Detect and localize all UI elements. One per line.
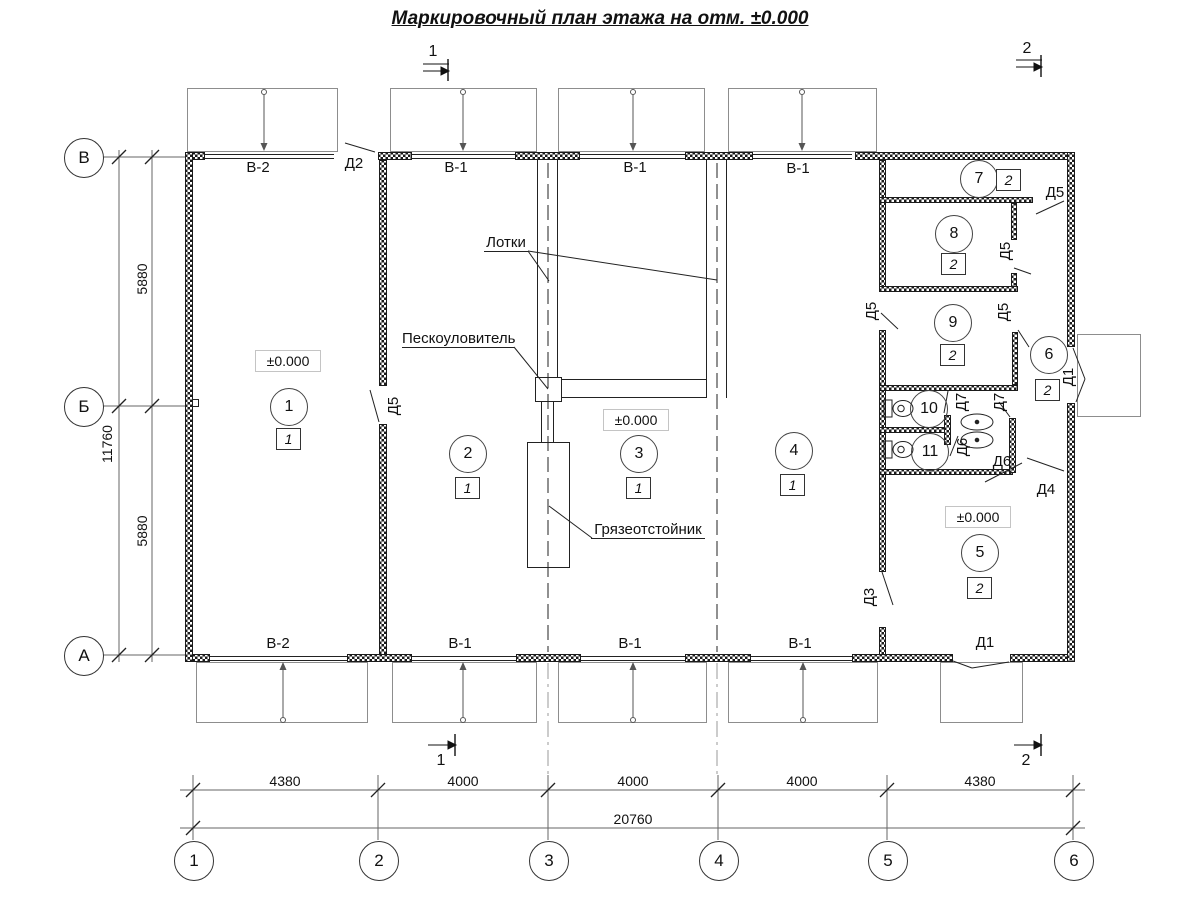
room-bubble-10: 10 [910, 390, 948, 428]
wall-right-upper [1067, 152, 1075, 347]
door-label-d7-2: Д7 [990, 380, 1008, 424]
dim-4000-1: 4000 [433, 773, 493, 789]
apron-top-1 [187, 88, 338, 152]
window-label-bottom-4: В-1 [778, 634, 822, 652]
axis-col-5: 5 [868, 841, 908, 881]
wall-top-right-block [855, 152, 1075, 160]
room-bubble-6: 6 [1030, 336, 1068, 374]
dim-total-left: 11760 [99, 414, 115, 474]
window-label-bottom-3: В-1 [608, 634, 652, 652]
door-label-d6-2: Д6 [980, 452, 1024, 470]
dim-5880-lower: 5880 [134, 501, 150, 561]
room-bubble-11: 11 [911, 433, 949, 471]
wall-bottom-pier-2 [347, 654, 412, 662]
axis-col-3: 3 [529, 841, 569, 881]
channel-cross [558, 379, 706, 398]
wall-bottom-pier-6 [1010, 654, 1075, 662]
axis-lines [102, 150, 1085, 840]
room-mark-3: 1 [626, 477, 651, 499]
door-label-d2: Д2 [332, 154, 376, 172]
room-bubble-5: 5 [961, 534, 999, 572]
door-label-d7-1: Д7 [952, 380, 970, 424]
wall-top-pier-3 [515, 152, 580, 160]
room-mark-1: 1 [276, 428, 301, 450]
partition-block-west-lower [879, 627, 886, 655]
wall-bottom-pier-3 [516, 654, 581, 662]
room-mark-7: 2 [996, 169, 1021, 191]
window-bottom-3 [581, 656, 685, 661]
room-bubble-2: 2 [449, 435, 487, 473]
dim-4380-2: 4380 [950, 773, 1010, 789]
room-mark-4: 1 [780, 474, 805, 496]
elevation-mark-room3: ±0.000 [603, 409, 669, 431]
axis-col-1: 1 [174, 841, 214, 881]
annotation-trays: Лотки [484, 234, 528, 252]
drawing-title: Маркировочный план этажа на отм. ±0.000 [0, 8, 1200, 30]
section-mark-2-top: 2 [1016, 40, 1038, 58]
channel-to-settler [541, 401, 554, 442]
dimension-ticks [112, 150, 1080, 835]
partition-room10-11 [879, 427, 948, 433]
room-mark-5: 2 [967, 577, 992, 599]
apron-bottom-4 [728, 662, 878, 723]
section-mark-1-top: 1 [422, 43, 444, 61]
room-bubble-4: 4 [775, 432, 813, 470]
window-label-top-2: В-1 [434, 158, 478, 176]
channel-left [537, 160, 558, 378]
axis-col-2: 2 [359, 841, 399, 881]
dim-4000-2: 4000 [603, 773, 663, 789]
room-mark-8: 2 [941, 253, 966, 275]
apron-bottom-3 [558, 662, 707, 723]
window-bottom-4 [751, 656, 852, 661]
window-label-top-3: В-1 [613, 158, 657, 176]
axis-row-b: Б [64, 387, 104, 427]
door-label-d4: Д4 [1024, 480, 1068, 498]
toilet-room11 [884, 441, 913, 458]
channel-right [706, 160, 727, 398]
window-label-top-1: В-2 [236, 158, 280, 176]
partition-room8-east-b [1011, 273, 1017, 287]
section-cut-marks [423, 55, 1042, 756]
wall-right-lower [1067, 403, 1075, 662]
elevation-mark-room1: ±0.000 [255, 350, 321, 372]
apron-top-3 [558, 88, 705, 152]
room-bubble-8: 8 [935, 215, 973, 253]
door-label-d5-room7: Д5 [1033, 183, 1077, 201]
dim-5880-upper: 5880 [134, 249, 150, 309]
window-label-bottom-2: В-1 [438, 634, 482, 652]
door-label-d5-hall: Д5 [862, 289, 880, 333]
axis-row-a: А [64, 636, 104, 676]
wall-jamb-axis-b [192, 399, 199, 407]
room-bubble-3: 3 [620, 435, 658, 473]
room-bubble-7: 7 [960, 160, 998, 198]
partition-room9-east [1012, 332, 1018, 385]
annotation-sand-trap: Пескоуловитель [402, 330, 514, 348]
window-label-bottom-1: В-2 [256, 634, 300, 652]
wall-top-pier-2 [378, 152, 412, 160]
window-label-top-4: В-1 [776, 159, 820, 177]
room-mark-6: 2 [1035, 379, 1060, 401]
mud-settler-box [527, 442, 570, 568]
wall-top-pier-4 [685, 152, 753, 160]
wall-bottom-pier-5 [852, 654, 953, 662]
window-bottom-2 [412, 656, 516, 661]
dim-total-bottom: 20760 [598, 811, 668, 827]
axis-col-4: 4 [699, 841, 739, 881]
apron-bottom-2 [392, 662, 537, 723]
axis-col-6: 6 [1054, 841, 1094, 881]
wall-bottom-pier-4 [685, 654, 751, 662]
annotation-mud-settler: Грязеотстойник [591, 521, 705, 539]
door-label-d5-room9: Д5 [994, 290, 1012, 334]
door-label-d5-room8: Д5 [996, 229, 1014, 273]
door-label-d6-1: Д6 [953, 425, 971, 469]
door-label-d5-room1: Д5 [384, 384, 402, 428]
partition-block-west-middle [879, 330, 886, 572]
apron-top-2 [390, 88, 537, 152]
toilet-room10 [884, 400, 913, 417]
room-bubble-1: 1 [270, 388, 308, 426]
apron-bottom-entrance [940, 662, 1023, 723]
partition-room1-upper [379, 160, 387, 386]
apron-top-4 [728, 88, 877, 152]
entrance-porch-right [1077, 334, 1141, 417]
wall-left [185, 152, 193, 662]
apron-bottom-1 [196, 662, 368, 723]
door-label-d1-bottom: Д1 [963, 633, 1007, 651]
elevation-mark-room5: ±0.000 [945, 506, 1011, 528]
partition-room1-lower [379, 424, 387, 655]
section-mark-2-bottom: 2 [1015, 752, 1037, 770]
floor-plan-sheet: Маркировочный план этажа на отм. ±0.000 … [0, 0, 1200, 900]
section-mark-1-bottom: 1 [430, 752, 452, 770]
room-bubble-9: 9 [934, 304, 972, 342]
dim-4000-3: 4000 [772, 773, 832, 789]
door-label-d3: Д3 [860, 575, 878, 619]
partition-block-west-upper [879, 160, 886, 291]
window-bottom-1 [210, 656, 347, 661]
axis-row-v: В [64, 138, 104, 178]
room-mark-2: 1 [455, 477, 480, 499]
dim-4380-1: 4380 [255, 773, 315, 789]
channel-centerlines [548, 163, 717, 652]
partition-room7-south [879, 197, 1033, 203]
room-mark-9: 2 [940, 344, 965, 366]
sand-trap-box [535, 377, 562, 402]
